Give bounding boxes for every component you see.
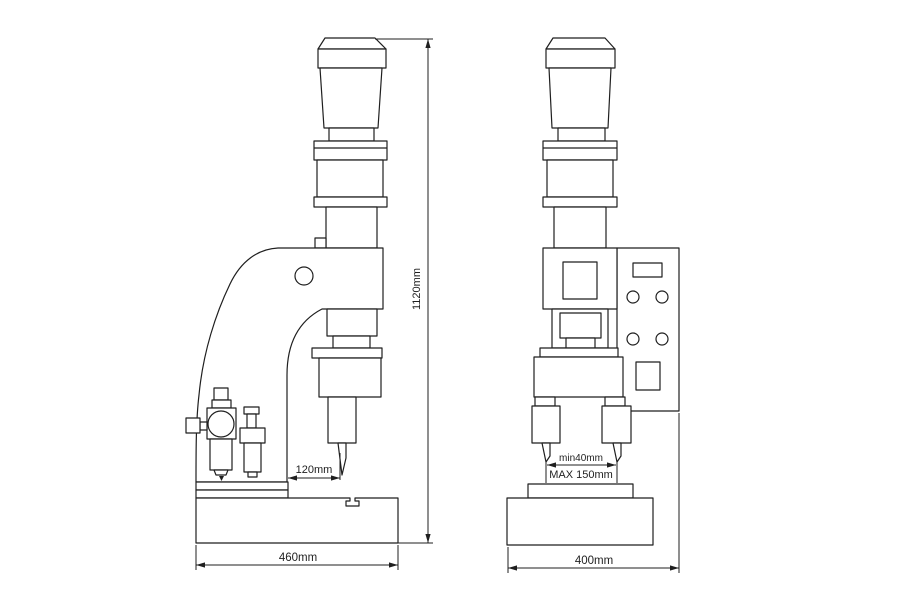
motor-body [549, 68, 611, 128]
air-cylinder [317, 160, 383, 197]
side-ram-assembly [312, 309, 382, 475]
panel-button-1 [627, 291, 639, 303]
support-column [326, 207, 377, 248]
dim-label-min40: min40mm [559, 453, 603, 464]
ram-housing-inner [560, 313, 601, 338]
head-window [563, 262, 597, 299]
motor-neck [329, 128, 374, 141]
dim-label-120: 120mm [296, 464, 333, 476]
arrow-left [547, 462, 556, 467]
arrow-right [607, 462, 616, 467]
regulator-gauge [208, 411, 234, 437]
pedestal-plate [528, 484, 633, 498]
frame-hole [295, 267, 313, 285]
front-view: min40mm MAX 150mm 400mm [507, 38, 679, 573]
air-cylinder-flange [314, 197, 387, 207]
panel-button-3 [627, 333, 639, 345]
tool-holder [328, 397, 356, 443]
dimension-base-width-side: 460mm [196, 545, 398, 570]
tool-connector-left [535, 397, 555, 406]
lubricator-cap [244, 407, 259, 414]
ram-block-lower [566, 338, 595, 348]
lubricator-tip [248, 472, 257, 477]
arrow-right [331, 475, 340, 480]
air-inlet-port [186, 418, 200, 433]
air-cylinder [547, 160, 613, 197]
front-head-block [543, 248, 617, 309]
dimension-throat-depth: 120mm [288, 453, 340, 481]
column-tab [315, 238, 326, 248]
arrow-left [288, 475, 297, 480]
machine-base-front [507, 498, 653, 545]
front-base [507, 484, 653, 545]
ram-block-upper [327, 309, 377, 336]
lubricator-stem [247, 414, 256, 428]
drawing-canvas: 1120mm 120mm 460mm [0, 0, 900, 600]
arrow-left [196, 562, 205, 567]
filter-bowl [210, 439, 232, 470]
dim-label-max150: MAX 150mm [549, 469, 613, 481]
technical-drawing: 1120mm 120mm 460mm [0, 0, 900, 600]
panel-button-2 [656, 291, 668, 303]
motor-neck [558, 128, 605, 141]
arrow-up [425, 39, 430, 48]
arrow-left [508, 565, 517, 570]
side-view: 1120mm 120mm 460mm [186, 38, 433, 570]
arrow-right [389, 562, 398, 567]
tool-pin [338, 443, 346, 475]
dimension-tool-gap: min40mm MAX 150mm [546, 453, 617, 483]
panel-display [633, 263, 662, 277]
motor-body [320, 68, 382, 128]
dim-label-400: 400mm [575, 555, 613, 567]
dim-label-460: 460mm [279, 552, 317, 564]
cylinder-top-plate [314, 141, 387, 160]
motor-cap [318, 49, 386, 68]
tool-pin-left [542, 443, 550, 462]
panel-button-4 [656, 333, 668, 345]
ram-flange [540, 348, 618, 357]
ram-cylinder [534, 357, 623, 397]
dimension-overall-height: 1120mm [375, 39, 433, 543]
support-column [554, 207, 606, 248]
front-motor-assembly [543, 38, 617, 248]
tool-pin-right [613, 443, 621, 462]
air-cylinder-flange [543, 197, 617, 207]
front-ram-assembly [532, 309, 631, 462]
panel-switch [636, 362, 660, 390]
ram-block-lower [333, 336, 370, 348]
machine-base-side [196, 498, 398, 543]
frame-foot-lower [196, 490, 288, 498]
tool-holder-left [532, 406, 560, 443]
side-motor-assembly [314, 38, 387, 248]
cylinder-top-plate [543, 141, 617, 160]
ram-flange [312, 348, 382, 358]
frame-foot-upper [196, 482, 288, 490]
arrow-right [670, 565, 679, 570]
motor-cap-top [546, 38, 615, 49]
tool-holder-right [602, 406, 631, 443]
air-inlet-pipe [200, 422, 207, 430]
ram-cylinder [319, 358, 381, 397]
motor-cap-top [318, 38, 386, 49]
motor-cap [546, 49, 615, 68]
tool-connector-right [605, 397, 625, 406]
arrow-down [425, 534, 430, 543]
lubricator-body [240, 428, 265, 443]
regulator-knob [214, 388, 228, 400]
dim-label-1120: 1120mm [411, 268, 423, 310]
filter-bowl-taper [214, 470, 228, 475]
regulator-knob-base [212, 400, 231, 408]
lubricator-bowl [244, 443, 261, 472]
